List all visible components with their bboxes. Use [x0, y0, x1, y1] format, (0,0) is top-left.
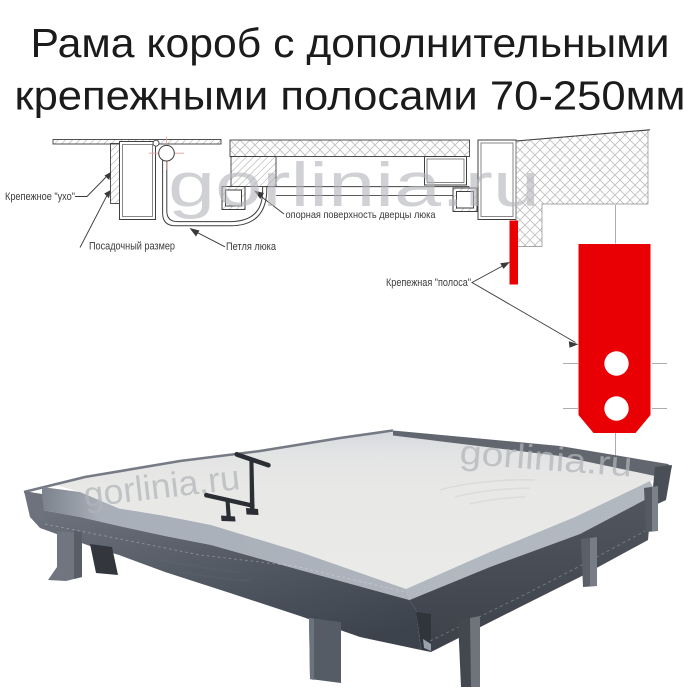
svg-text:Крепежная "полоса": Крепежная "полоса": [386, 277, 471, 289]
svg-text:Крепежное "ухо": Крепежное "ухо": [5, 191, 75, 203]
svg-text:Петля люка: Петля люка: [226, 241, 277, 253]
svg-text:Рама короб с дополнительными: Рама короб с дополнительными: [31, 20, 670, 66]
svg-text:gorlinia.ru: gorlinia.ru: [168, 151, 540, 220]
svg-text:крепежными полосами 70-250мм: крепежными полосами 70-250мм: [15, 73, 686, 119]
svg-text:Посадочный размер: Посадочный размер: [89, 241, 175, 253]
